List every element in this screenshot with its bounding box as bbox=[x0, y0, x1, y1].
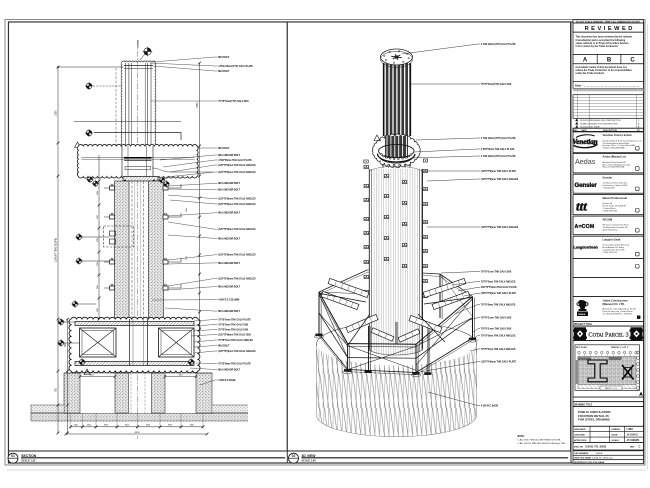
svg-text:Tel : (853) 2870 3918 Fax :: Tel : (853) 2870 3918 Fax : 2870 3917 bbox=[603, 314, 633, 316]
svg-text:75*75*5mm THK GALV ANGLES: 75*75*5mm THK GALV ANGLES bbox=[481, 334, 516, 337]
svg-text:4 500*50mm THK GALV PLATE: 4 500*50mm THK GALV PLATE bbox=[481, 148, 515, 151]
svg-text:2. ALL FILLET WELDED SHOULD BE: 2. ALL FILLET WELDED SHOULD BE 8mm THK. bbox=[518, 442, 566, 445]
svg-text:75*75*5mm THK GALV ANGLES: 75*75*5mm THK GALV ANGLES bbox=[218, 339, 253, 342]
svg-text:REV: REV bbox=[630, 446, 635, 448]
svg-text:M16 ANCHOR BOLT: M16 ANCHOR BOLT bbox=[218, 182, 240, 185]
svg-text:COTAI PARCEL 3: COTAI PARCEL 3 bbox=[588, 332, 628, 339]
svg-text:DRAWN: DRAWN bbox=[612, 428, 621, 431]
svg-text:(125*75*9)mm THK GALV ANGLES: (125*75*9)mm THK GALV ANGLES bbox=[218, 198, 256, 201]
svg-text:M16 BOLT: M16 BOLT bbox=[218, 57, 230, 59]
svg-text:B-FDB: B-FDB bbox=[596, 453, 603, 455]
svg-text:75*75*5mm THK GALV PLATE: 75*75*5mm THK GALV PLATE bbox=[218, 318, 251, 321]
svg-text:Macau Professional: Macau Professional bbox=[603, 196, 628, 200]
svg-text:(125*75*9)mm THK GALV ANGLES: (125*75*9)mm THK GALV ANGLES bbox=[218, 254, 256, 257]
svg-text:01: 01 bbox=[11, 454, 15, 458]
svg-text:(125*75*9)mm THK GALV ANGLES: (125*75*9)mm THK GALV ANGLES bbox=[218, 171, 256, 174]
svg-text:KEY PLAN: KEY PLAN bbox=[576, 346, 587, 349]
svg-text:Date :: Date : bbox=[575, 83, 583, 87]
svg-text:(125*75*9)mm THK GALV ANGLES: (125*75*9)mm THK GALV ANGLES bbox=[218, 164, 256, 167]
svg-text:2250: 2250 bbox=[56, 110, 58, 116]
svg-text:75*75*5mm(TYP) GALV SHS: 75*75*5mm(TYP) GALV SHS bbox=[481, 83, 512, 86]
svg-text:Gensler: Gensler bbox=[575, 183, 598, 189]
svg-text:CAD NUMBER: CAD NUMBER bbox=[574, 452, 589, 455]
svg-text:4 THK 90mm(TYP) GALV PLATE: 4 THK 90mm(TYP) GALV PLATE bbox=[218, 65, 253, 68]
svg-text:APPROVED: APPROVED bbox=[574, 439, 587, 442]
svg-text:DRAWING TITLE: DRAWING TITLE bbox=[574, 403, 593, 406]
svg-text:ttt: ttt bbox=[576, 199, 587, 214]
svg-text:75*75*9mm THK GALV PLATE: 75*75*9mm THK GALV PLATE bbox=[218, 362, 251, 365]
svg-text:(125*75*9)mm THK GALV ANGLES: (125*75*9)mm THK GALV ANGLES bbox=[481, 226, 519, 229]
svg-text:DATE: DATE bbox=[612, 434, 618, 437]
svg-text:M16 ANCHOR BOLT: M16 ANCHOR BOLT bbox=[218, 189, 240, 192]
svg-text:M16 ANCHOR BOLT: M16 ANCHOR BOLT bbox=[218, 212, 240, 215]
svg-text:M16 ANCHOR BOLT: M16 ANCHOR BOLT bbox=[218, 368, 240, 371]
svg-text:4 500 R.C BASE: 4 500 R.C BASE bbox=[481, 405, 499, 408]
svg-text:75*75*5mm(TYP) GALV SHS: 75*75*5mm(TYP) GALV SHS bbox=[218, 100, 249, 103]
svg-text:2250: 2250 bbox=[197, 102, 199, 108]
svg-text:460*75*5*9mm THK GALV PLATE: 460*75*5*9mm THK GALV PLATE bbox=[481, 286, 517, 289]
svg-text:Telephone: (853) 2882 8888: Telephone: (853) 2882 8888 bbox=[603, 148, 625, 150]
svg-text:FOR STEEL DRAWING: FOR STEEL DRAWING bbox=[578, 418, 611, 422]
svg-text:M16 ANCHOR BOLT: M16 ANCHOR BOLT bbox=[218, 154, 240, 157]
svg-text:4528: 4528 bbox=[135, 432, 141, 434]
svg-text:SCALE 1:25: SCALE 1:25 bbox=[21, 460, 36, 463]
svg-text:4 THK 90mm(TYP) GALV PLATE: 4 THK 90mm(TYP) GALV PLATE bbox=[481, 155, 516, 158]
svg-text:(125*75*9)mm THK GALV ANGLES: (125*75*9)mm THK GALV ANGLES bbox=[218, 350, 256, 353]
svg-text:(125*75*9)mm THK GALV SHS: (125*75*9)mm THK GALV SHS bbox=[218, 333, 251, 336]
svg-text:75*75*5 mm THK GALV SHS: 75*75*5 mm THK GALV SHS bbox=[481, 316, 512, 319]
svg-text:RE-ISSUED FOR CONSTRUCTION: RE-ISSUED FOR CONSTRUCTION bbox=[590, 120, 621, 122]
svg-text:Gensler: Gensler bbox=[603, 175, 613, 179]
svg-text:75*75*5mm THK GALV ANGLES: 75*75*5mm THK GALV ANGLES bbox=[481, 348, 516, 351]
svg-text:4 500 R.C BASE: 4 500 R.C BASE bbox=[218, 379, 236, 382]
svg-text:75*75*5mm THK GALV ANGLES: 75*75*5mm THK GALV ANGLES bbox=[481, 280, 516, 283]
svg-text:DWG NO: DWG NO bbox=[574, 446, 584, 448]
svg-text:(125*75*9)mm THK GALV ANGLES: (125*75*9)mm THK GALV ANGLES bbox=[218, 228, 256, 231]
svg-text:(Macau) CO. LTD.: (Macau) CO. LTD. bbox=[603, 302, 625, 306]
svg-text:DWG FILE NAME: DWG FILE NAME bbox=[574, 457, 591, 460]
svg-text:Aedas (Macau) Ltd.: Aedas (Macau) Ltd. bbox=[603, 155, 627, 159]
svg-text:(125*75*9)mm THK GALV PLATE: (125*75*9)mm THK GALV PLATE bbox=[481, 170, 517, 173]
svg-text:4 THK 90mm(TYP) GALV PLATE: 4 THK 90mm(TYP) GALV PLATE bbox=[481, 43, 516, 46]
svg-text:75*75*5mm THK GALV SHS: 75*75*5mm THK GALV SHS bbox=[218, 328, 248, 331]
svg-text:18-MAY-10: 18-MAY-10 bbox=[580, 122, 589, 125]
svg-text:1. ALL BOLT SHOULD BE FIXING O: 1. ALL BOLT SHOULD BE FIXING ON SITE. bbox=[518, 439, 562, 442]
svg-text:4 500*50mm THK GALV PLATE: 4 500*50mm THK GALV PLATE bbox=[218, 159, 252, 162]
svg-text:02: 02 bbox=[292, 454, 296, 458]
svg-text:(125*75*9)mm THK GALV ANGLES: (125*75*9)mm THK GALV ANGLES bbox=[481, 178, 519, 181]
svg-text:T 415.433.3700: T 415.433.3700 bbox=[603, 188, 615, 190]
svg-text:5.4 for action by the Trade Co: 5.4 for action by the Trade Contractor. bbox=[576, 45, 619, 48]
svg-text:4 500 R.C COLUMN: 4 500 R.C COLUMN bbox=[218, 299, 239, 302]
svg-text:A=COM: A=COM bbox=[575, 224, 595, 230]
svg-text:M16 BOLT: M16 BOLT bbox=[218, 148, 230, 150]
svg-text:T (853) 2878 6283: T (853) 2878 6283 bbox=[603, 210, 617, 212]
svg-text:-: - bbox=[293, 460, 294, 463]
svg-text:REVIEWED: REVIEWED bbox=[585, 26, 635, 32]
svg-text:C: C bbox=[639, 444, 641, 448]
svg-text:Macau Tel: (853) 2875 3088: Macau Tel: (853) 2875 3088 bbox=[603, 167, 625, 169]
svg-text:4 THK 90mm(TYP) GALV PLATE: 4 THK 90mm(TYP) GALV PLATE bbox=[481, 137, 516, 140]
svg-text:T (853) 2833 1710: T (853) 2833 1710 bbox=[603, 252, 617, 254]
svg-text:75*75*5mm THK GALV ANGLES: 75*75*5mm THK GALV ANGLES bbox=[481, 303, 516, 306]
svg-text:Venetian Orient Limited: Venetian Orient Limited bbox=[603, 133, 632, 137]
svg-text:75*75*5 mm THK GALV SHS: 75*75*5 mm THK GALV SHS bbox=[481, 328, 512, 331]
svg-text:14-JUN-10: 14-JUN-10 bbox=[627, 434, 639, 437]
svg-text:DATE: DATE bbox=[581, 129, 587, 132]
svg-text:Aedas: Aedas bbox=[575, 157, 596, 166]
svg-text:C: C bbox=[630, 58, 635, 64]
svg-text:B: B bbox=[607, 58, 612, 64]
svg-text:PARCEL 1, LOT 2: PARCEL 1, LOT 2 bbox=[611, 346, 629, 349]
svg-text:75*75*5mm THK GALV SHS: 75*75*5mm THK GALV SHS bbox=[218, 323, 248, 326]
svg-text:A: A bbox=[583, 58, 588, 64]
svg-text:1156 (FITTING SLOPE): 1156 (FITTING SLOPE) bbox=[56, 238, 58, 263]
svg-text:M16 ANCHOR BOLT: M16 ANCHOR BOLT bbox=[218, 237, 240, 240]
svg-text:02-JUN-10: 02-JUN-10 bbox=[580, 120, 589, 122]
svg-text:NOTE:: NOTE: bbox=[518, 436, 525, 438]
svg-text:-: - bbox=[13, 460, 14, 463]
svg-text:M16 ANCHOR BOLT: M16 ANCHOR BOLT bbox=[218, 262, 240, 265]
svg-text:3-SUB_FD_B030: 3-SUB_FD_B030 bbox=[585, 444, 607, 448]
svg-text:(125*75*9)mm THK GALV ANGLES: (125*75*9)mm THK GALV ANGLES bbox=[218, 203, 256, 206]
svg-text:Shatin, Hong Kong: Shatin, Hong Kong bbox=[603, 228, 618, 231]
svg-text:under the Trade Contract.: under the Trade Contract. bbox=[576, 72, 605, 75]
svg-text:LUND: LUND bbox=[627, 429, 634, 431]
svg-text:REFERENCE DWG FILE NAME: REFERENCE DWG FILE NAME bbox=[574, 461, 605, 464]
svg-text:SCALE: SCALE bbox=[612, 439, 620, 442]
svg-text:(125*75*9)mm THK GALV PLATE: (125*75*9)mm THK GALV PLATE bbox=[481, 292, 517, 295]
svg-text:(125*75*9)mm THK GALV PLATE: (125*75*9)mm THK GALV PLATE bbox=[481, 361, 517, 364]
svg-text:M16 ANCHOR BOLT: M16 ANCHOR BOLT bbox=[218, 310, 240, 313]
svg-text:M16 BOLT: M16 BOLT bbox=[218, 345, 230, 347]
svg-text:M16 ANCHOR BOLT: M16 ANCHOR BOLT bbox=[218, 286, 240, 289]
svg-text:AECOM: AECOM bbox=[603, 217, 613, 221]
svg-text:CHECKED: CHECKED bbox=[574, 435, 585, 437]
svg-text:AS SHOWN: AS SHOWN bbox=[627, 439, 640, 442]
svg-text:SCALE 1:50: SCALE 1:50 bbox=[302, 460, 317, 463]
svg-text:(125*75*9)mm THK GALV ANGLES: (125*75*9)mm THK GALV ANGLES bbox=[218, 277, 256, 280]
svg-text:Langdon Seah: Langdon Seah bbox=[603, 237, 621, 241]
svg-text:LangdonSeah: LangdonSeah bbox=[574, 246, 599, 250]
svg-text:75*75*5 mm THK GALV SHS: 75*75*5 mm THK GALV SHS bbox=[481, 270, 512, 273]
svg-text:M16 BOLT: M16 BOLT bbox=[218, 71, 230, 73]
svg-text:ISSUED FOR CONSTRUCTION: ISSUED FOR CONSTRUCTION bbox=[590, 123, 618, 125]
svg-text:Yadea Construction: Yadea Construction bbox=[603, 299, 629, 303]
svg-text:YADEA: YADEA bbox=[578, 313, 586, 316]
svg-text:DESIGNED: DESIGNED bbox=[574, 429, 586, 431]
